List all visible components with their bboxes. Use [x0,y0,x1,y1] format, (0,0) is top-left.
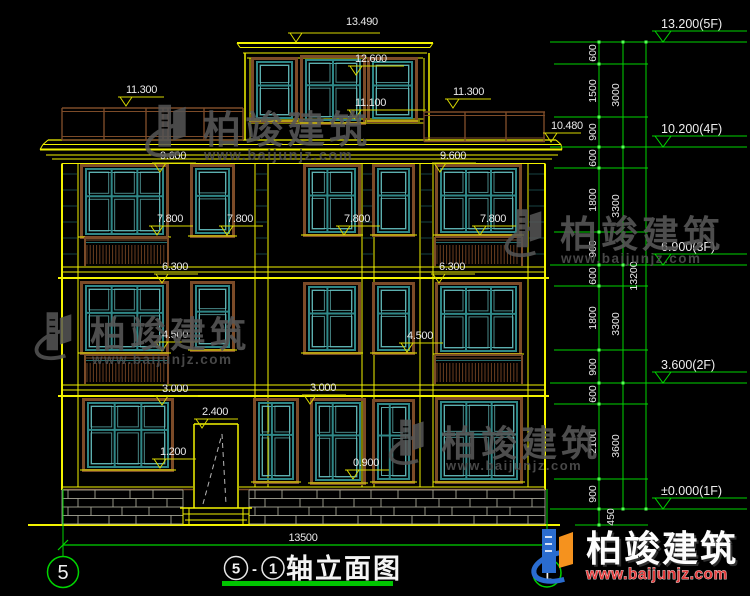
elevation-drawing-canvas: 13.200(5F)10.200(4F)6.900(3F)3.600(2F)±0… [0,0,750,596]
overall-width-dimension: 13500 [288,532,317,544]
title-axis-number-end: 1 [269,561,277,578]
chain-dimension-value: 900 [587,485,599,503]
elevation-mark-value: 7.800 [480,213,506,225]
elevation-mark-value: 3.000 [162,383,188,395]
green-dimension-system: 13.200(5F)10.200(4F)6.900(3F)3.600(2F)±0… [48,17,748,588]
chain-dimension-value: 900 [587,123,599,141]
elevation-mark-value: 3.000 [310,382,336,394]
chain-dimension-value: 600 [587,149,599,167]
logo-brand: 柏竣建筑 [586,528,738,569]
watermark-url: www.baijunjz.com [445,458,582,473]
brand-logo: 柏竣建筑 柏竣建筑 www.baijunjz.com [531,528,740,586]
watermark-logo-icon [387,420,439,469]
elevation-mark-value: 11.300 [453,86,484,98]
chain-dimension-value: 1800 [587,188,599,212]
elevation-mark-value: 7.800 [157,213,183,225]
chain-dimension-value: 900 [587,358,599,376]
elevation-mark-value: 6.300 [162,261,188,273]
watermark-brand: 柏竣建筑 [560,213,724,255]
elevation-mark-value: 4.500 [407,330,433,342]
elevation-mark-value: 12.600 [355,53,387,65]
elevation-mark-value: 11.300 [126,84,157,96]
elevation-mark-value: 2.400 [202,406,228,418]
title-axis-number-start: 5 [232,561,240,578]
elevation-mark-value: 7.800 [344,213,370,225]
elevation-mark-value: 9.600 [440,150,466,162]
watermark-url: www.baijunjz.com [203,148,353,164]
watermark-logo-icon [33,312,88,363]
chain-dimension-value: 450 [605,508,617,526]
floor-level-label: 13.200(5F) [661,17,722,31]
watermark-url: www.baijunjz.com [91,352,233,367]
elevation-mark-value: 0.900 [353,457,379,469]
chain-dimension-value: 600 [587,267,599,285]
chain-dimension-value: 3600 [610,434,622,458]
chain-dimension-value: 3300 [610,312,622,336]
floor-level-label: 10.200(4F) [661,122,722,136]
drawing-title-text: 轴立面图 [286,553,402,584]
elevation-mark-value: 6.300 [439,261,465,273]
axis-bubble-number: 5 [57,562,68,584]
floor-level-label: 3.600(2F) [661,358,715,372]
elevation-mark-value: 13.490 [346,16,378,28]
chain-dimension-value: 3000 [610,83,622,107]
baijun-logo-icon [531,529,590,586]
chain-dimension-value: 600 [587,44,599,62]
chain-dimension-value: 600 [587,385,599,403]
elevation-mark-value: 11.100 [355,97,386,109]
watermark-url: www.baijunjz.com [560,251,702,266]
elevation-mark-value: 1.200 [160,446,186,458]
watermark-brand: 柏竣建筑 [203,110,371,152]
logo-url: www.baijunjz.com [585,566,728,583]
watermark-logo-icon [143,105,203,162]
elevation-mark-value: 10.480 [551,120,583,132]
elevation-mark-value: 7.800 [227,213,253,225]
chain-dimension-value: 1500 [587,79,599,103]
chain-dimension-value: 1800 [587,306,599,330]
title-block: 5 1 - 轴立面图 [222,553,402,586]
floor-level-label: ±0.000(1F) [661,484,722,498]
watermark-brand: 柏竣建筑 [90,314,250,355]
title-dash: - [252,561,257,578]
